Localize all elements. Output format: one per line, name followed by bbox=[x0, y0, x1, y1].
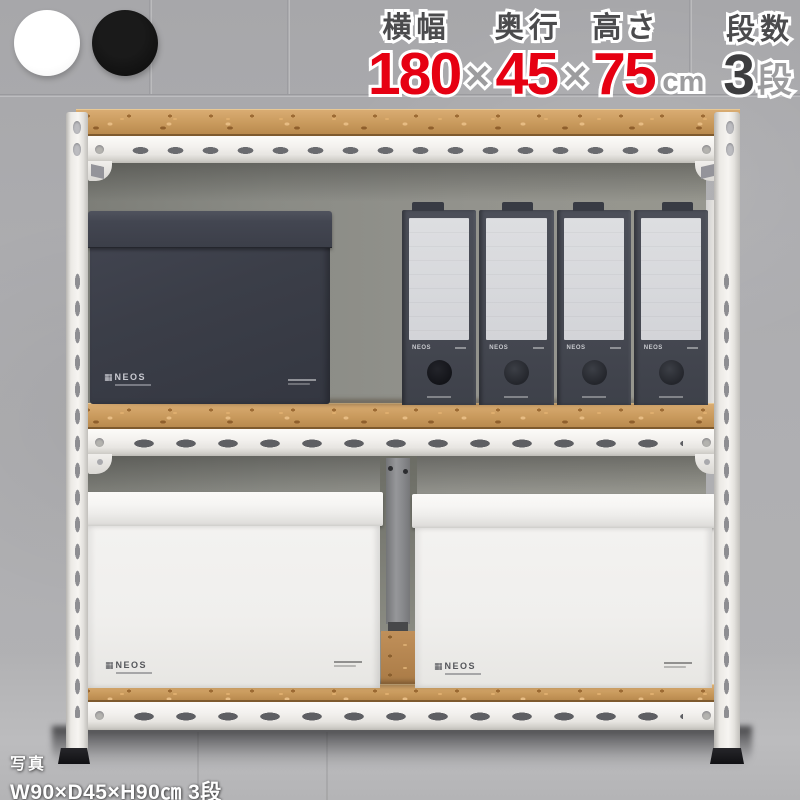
brand-name: NEOS bbox=[567, 345, 586, 351]
shelf-board-top bbox=[76, 109, 740, 136]
spec-tiers-row: 3 段 bbox=[723, 49, 792, 101]
beam-end-hole bbox=[95, 145, 104, 154]
file-box-row: NEOS NEOS NEOS bbox=[402, 210, 708, 405]
spec-tiers-unit: 段 bbox=[757, 63, 792, 98]
post-hole bbox=[726, 121, 734, 134]
brand-name: NEOS bbox=[115, 373, 147, 382]
finger-hole bbox=[504, 360, 529, 385]
product-photo: ▦ NEOS NEOS NEOS bbox=[0, 0, 800, 800]
multiply-sign: × bbox=[465, 55, 490, 97]
finger-hole bbox=[427, 360, 452, 385]
wall-joint-vertical bbox=[287, 0, 290, 94]
fine-print bbox=[288, 379, 316, 386]
beam-slot-holes bbox=[123, 146, 683, 155]
front-beam-bottom bbox=[87, 702, 719, 730]
post-slot-holes bbox=[723, 268, 730, 718]
file-box-back-tab bbox=[502, 202, 533, 211]
spec-depth-label: 奥行 bbox=[495, 4, 563, 46]
file-box-label-panel bbox=[486, 218, 546, 340]
brand-subtext-line bbox=[445, 673, 481, 675]
spec-depth-value: 45 bbox=[495, 47, 557, 101]
beam-slot-holes bbox=[123, 439, 683, 448]
white-storage-box: ▦ NEOS bbox=[415, 494, 712, 688]
white-storage-box: ▦ NEOS bbox=[88, 492, 380, 688]
rack-post-right bbox=[714, 112, 740, 762]
fine-print bbox=[455, 347, 466, 349]
fine-print bbox=[504, 396, 528, 398]
finger-hole bbox=[659, 360, 684, 385]
spec-height-unit: cm bbox=[662, 68, 704, 97]
file-box: NEOS bbox=[479, 210, 553, 405]
file-box-label-panel bbox=[564, 218, 624, 340]
brand-logo: ▦ NEOS bbox=[434, 662, 476, 671]
post-slot-holes bbox=[74, 268, 81, 718]
post-hole bbox=[73, 121, 81, 134]
spec-height: 高さ 75 bbox=[592, 4, 655, 101]
color-option-white bbox=[14, 10, 80, 76]
spec-height-label: 高さ bbox=[592, 4, 660, 46]
finger-hole bbox=[582, 360, 607, 385]
beam-end-hole bbox=[702, 711, 711, 720]
file-box-strip: NEOS bbox=[641, 342, 701, 354]
file-box-strip: NEOS bbox=[409, 342, 469, 354]
beam-end-hole bbox=[702, 145, 711, 154]
spec-width-label: 横幅 bbox=[383, 4, 451, 46]
spec-depth: 奥行 45 bbox=[495, 4, 558, 101]
file-box: NEOS bbox=[402, 210, 476, 405]
bolt-icon bbox=[388, 466, 393, 471]
fine-print bbox=[659, 396, 683, 398]
fine-print bbox=[533, 347, 544, 349]
neos-grid-icon: ▦ bbox=[104, 373, 113, 382]
color-option-black bbox=[92, 10, 158, 76]
black-storage-box: ▦ NEOS bbox=[90, 211, 330, 404]
white-box-lid bbox=[85, 492, 383, 526]
spec-width: 横幅 180 bbox=[368, 4, 460, 101]
beam-end-hole bbox=[95, 711, 104, 720]
fine-print bbox=[687, 347, 698, 349]
shelf-board-middle bbox=[76, 403, 740, 429]
fine-print bbox=[334, 661, 362, 668]
white-box-lid bbox=[412, 494, 715, 528]
fine-print bbox=[610, 347, 621, 349]
fine-print bbox=[427, 396, 451, 398]
file-box-strip: NEOS bbox=[486, 342, 546, 354]
photo-caption: 写真 W90×D45×H90㎝ 3段 bbox=[10, 750, 222, 800]
spec-tiers-label: 段数 bbox=[726, 6, 794, 48]
file-box: NEOS bbox=[557, 210, 631, 405]
spec-tiers: 段数 3 段 bbox=[723, 6, 792, 101]
file-box-label-panel bbox=[641, 218, 701, 340]
brand-name: NEOS bbox=[445, 662, 477, 671]
file-box-back-tab bbox=[662, 202, 693, 211]
brand-logo: ▦ NEOS bbox=[105, 661, 147, 670]
file-box-label-panel bbox=[409, 218, 469, 340]
rack-foot-right bbox=[710, 748, 744, 764]
brand-name: NEOS bbox=[489, 345, 508, 351]
caption-line2: W90×D45×H90㎝ 3段 bbox=[10, 776, 222, 800]
spec-height-value: 75 bbox=[593, 47, 655, 101]
file-box: NEOS bbox=[634, 210, 708, 405]
front-beam-top bbox=[87, 136, 719, 163]
brand-name: NEOS bbox=[116, 661, 148, 670]
post-hole bbox=[726, 143, 734, 156]
file-box-strip: NEOS bbox=[564, 342, 624, 354]
shelf-deck-gap bbox=[381, 631, 417, 686]
rack-back-post bbox=[386, 458, 410, 624]
front-beam-middle bbox=[87, 429, 719, 456]
beam-slot-holes bbox=[123, 712, 683, 721]
bolt-icon bbox=[403, 469, 408, 474]
file-box-back-tab bbox=[412, 202, 443, 211]
rack-post-left bbox=[66, 112, 88, 762]
black-box-lid bbox=[88, 211, 332, 248]
size-spec-overlay: 横幅 180 × 奥行 45 × 高さ 75 cm 段数 3 段 bbox=[368, 4, 792, 101]
brand-subtext-line bbox=[115, 384, 151, 386]
fine-print bbox=[582, 396, 606, 398]
post-hole bbox=[73, 143, 81, 156]
fine-print bbox=[664, 662, 692, 669]
brand-name: NEOS bbox=[644, 345, 663, 351]
beam-end-hole bbox=[95, 438, 104, 447]
beam-end-hole bbox=[702, 438, 711, 447]
neos-grid-icon: ▦ bbox=[434, 662, 443, 671]
spec-tiers-value: 3 bbox=[723, 49, 755, 101]
file-box-back-tab bbox=[573, 202, 604, 211]
spec-width-value: 180 bbox=[368, 47, 460, 101]
brand-subtext-line bbox=[116, 672, 152, 674]
multiply-sign: × bbox=[563, 55, 588, 97]
caption-line1: 写真 bbox=[10, 750, 222, 774]
neos-grid-icon: ▦ bbox=[105, 661, 114, 670]
brand-logo: ▦ NEOS bbox=[104, 373, 146, 382]
brand-name: NEOS bbox=[412, 345, 431, 351]
